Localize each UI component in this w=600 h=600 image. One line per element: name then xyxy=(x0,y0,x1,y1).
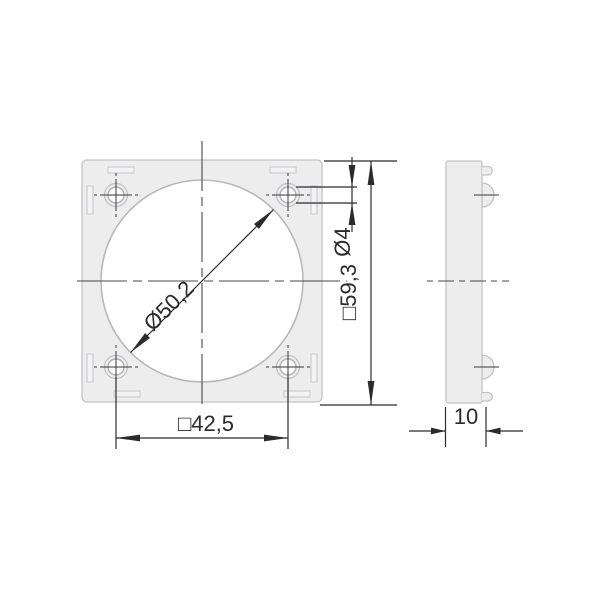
front-view: Ø50,2 Ø4 □59,3 □42,5 xyxy=(77,141,397,449)
edge-slot-left-upper xyxy=(87,186,93,214)
edge-slot-left-lower xyxy=(87,354,93,382)
edge-slot-top-left xyxy=(108,167,134,173)
dimension-thickness: 10 xyxy=(409,404,523,447)
arrowhead xyxy=(349,203,356,225)
arrowhead xyxy=(368,161,375,185)
side-view: 10 xyxy=(409,161,523,447)
arrowhead xyxy=(349,165,356,187)
edge-slot-top-right xyxy=(270,167,296,173)
arrowhead xyxy=(368,381,375,405)
edge-slot-right-upper xyxy=(311,186,317,214)
side-snap-tab-upper xyxy=(482,167,492,176)
arrowhead xyxy=(486,428,501,435)
dimension-outer-square: □59,3 xyxy=(320,161,397,405)
arrowhead xyxy=(116,435,140,442)
arrowhead xyxy=(264,435,288,442)
side-snap-tab-lower xyxy=(482,393,492,402)
dim-label-hole-spacing: □42,5 xyxy=(178,411,234,436)
dim-label-corner-hole-diameter: Ø4 xyxy=(330,227,355,256)
technical-drawing-canvas: Ø50,2 Ø4 □59,3 □42,5 xyxy=(0,0,600,600)
dim-label-thickness: 10 xyxy=(454,404,478,429)
edge-slot-bottom-left xyxy=(114,391,140,397)
edge-slot-right-lower xyxy=(311,354,317,382)
arrowhead xyxy=(431,428,446,435)
drawing-sheet: Ø50,2 Ø4 □59,3 □42,5 xyxy=(0,0,600,600)
dim-label-outer-square: □59,3 xyxy=(336,264,361,320)
